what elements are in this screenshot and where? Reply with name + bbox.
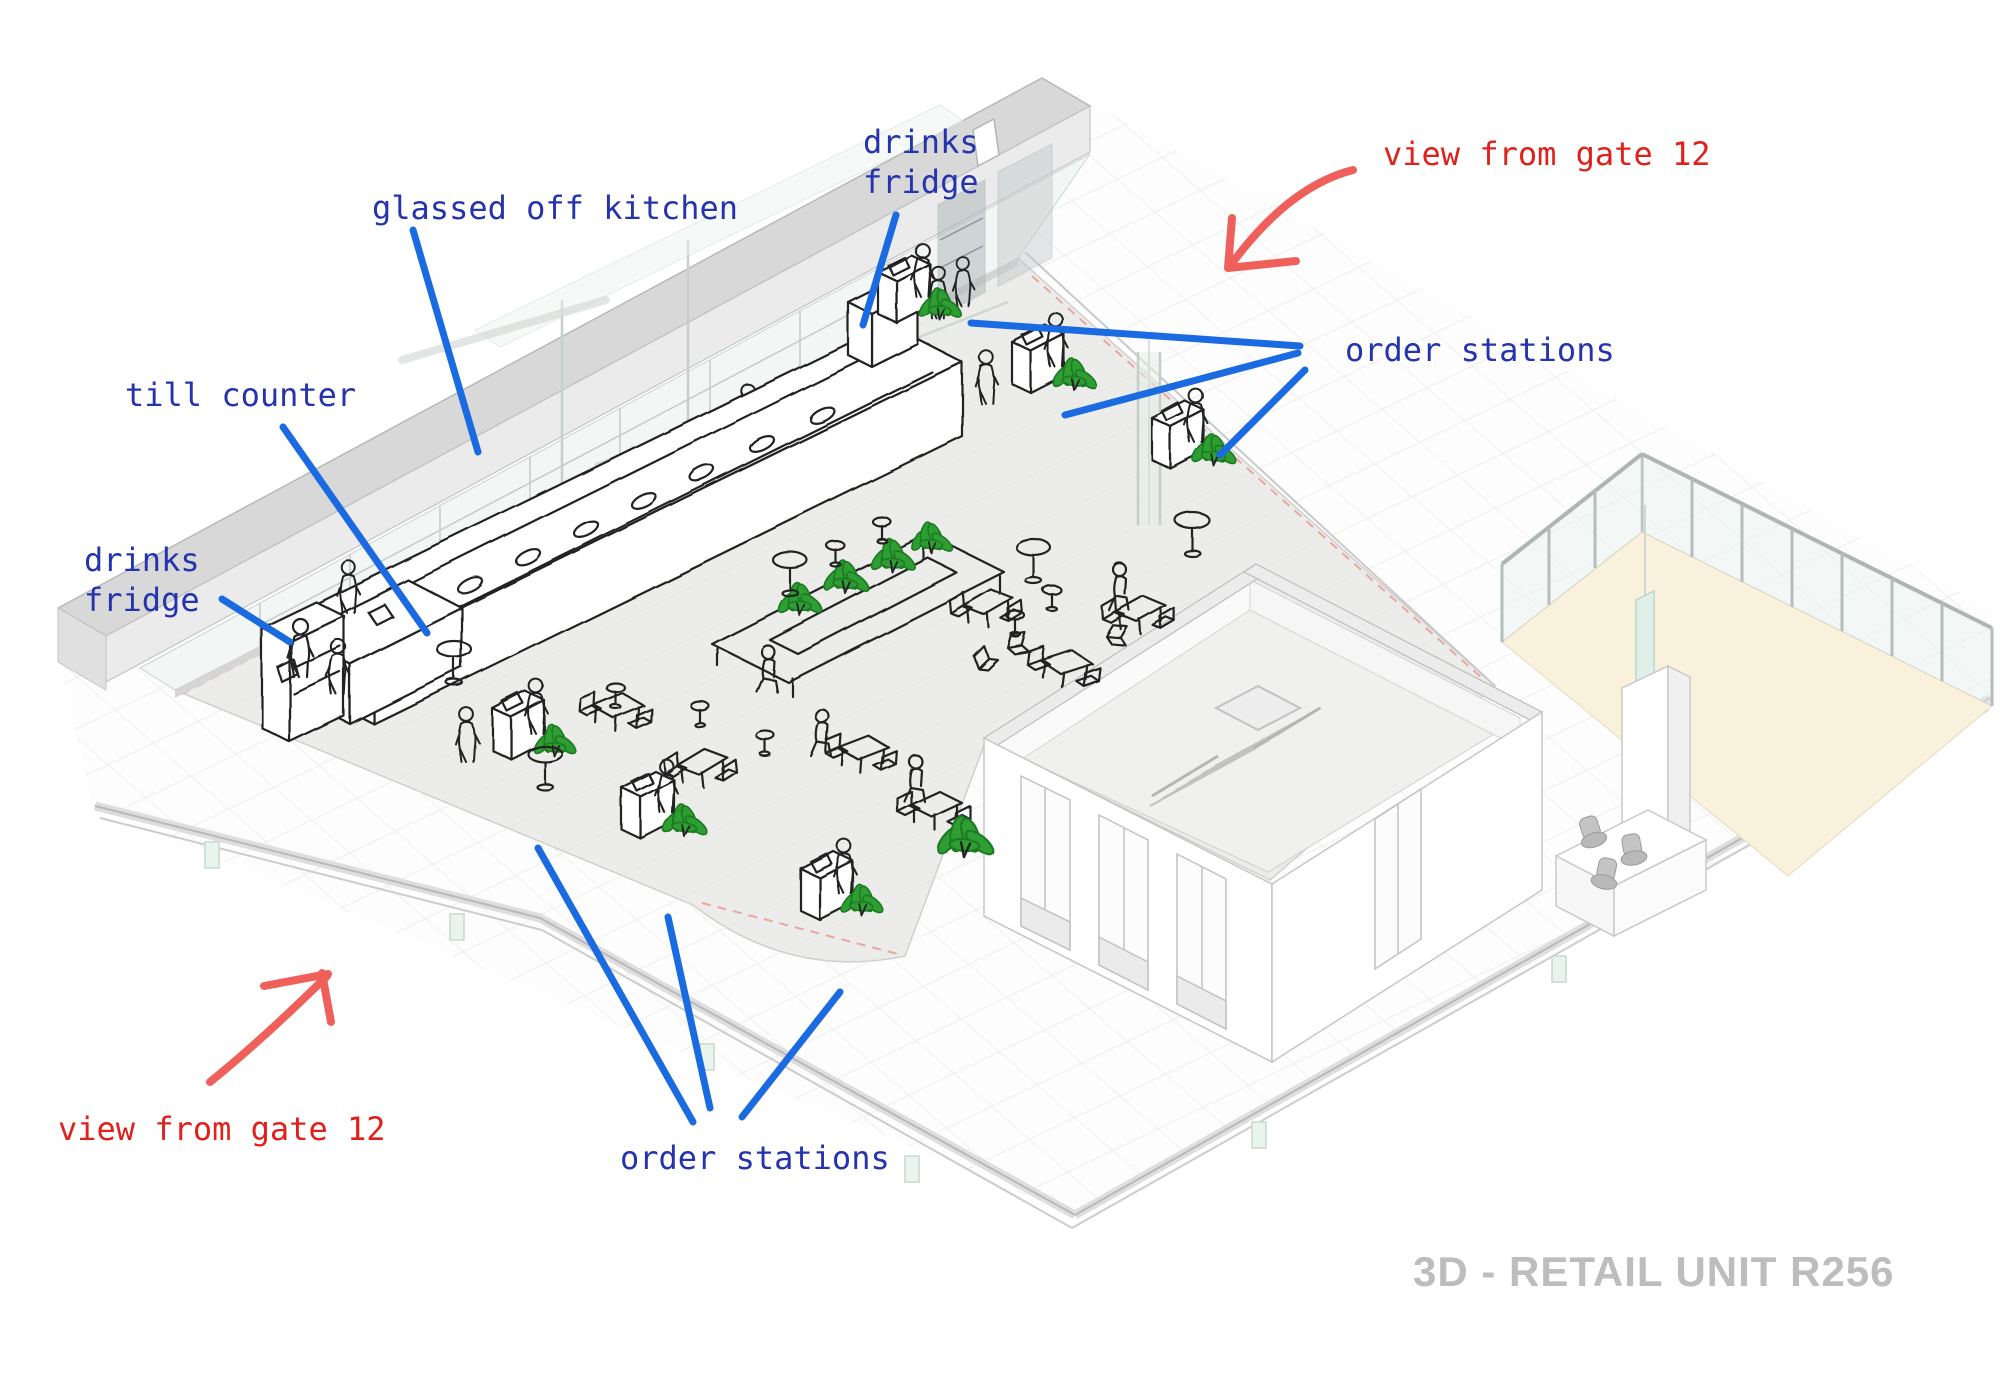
label-glassed-off-kitchen: glassed off kitchen (372, 188, 738, 228)
label-order-stations-bottom: order stations (620, 1138, 890, 1178)
view-arrow-bottom (210, 973, 331, 1082)
isometric-drawing (0, 0, 2000, 1397)
architectural-diagram: drinks fridge glassed off kitchen view f… (0, 0, 2000, 1397)
label-drinks-fridge-left: drinks fridge (84, 540, 200, 620)
drinks-fridge-left-sketch (262, 602, 344, 742)
label-order-stations-right: order stations (1345, 330, 1615, 370)
label-till-counter: till counter (125, 375, 356, 415)
label-view-from-gate-top: view from gate 12 (1383, 135, 1711, 173)
terrace (1502, 454, 1992, 936)
label-view-from-gate-bottom: view from gate 12 (58, 1110, 386, 1148)
label-drinks-fridge-top: drinks fridge (863, 122, 979, 202)
drawing-title: 3D - RETAIL UNIT R256 (1413, 1248, 1895, 1296)
